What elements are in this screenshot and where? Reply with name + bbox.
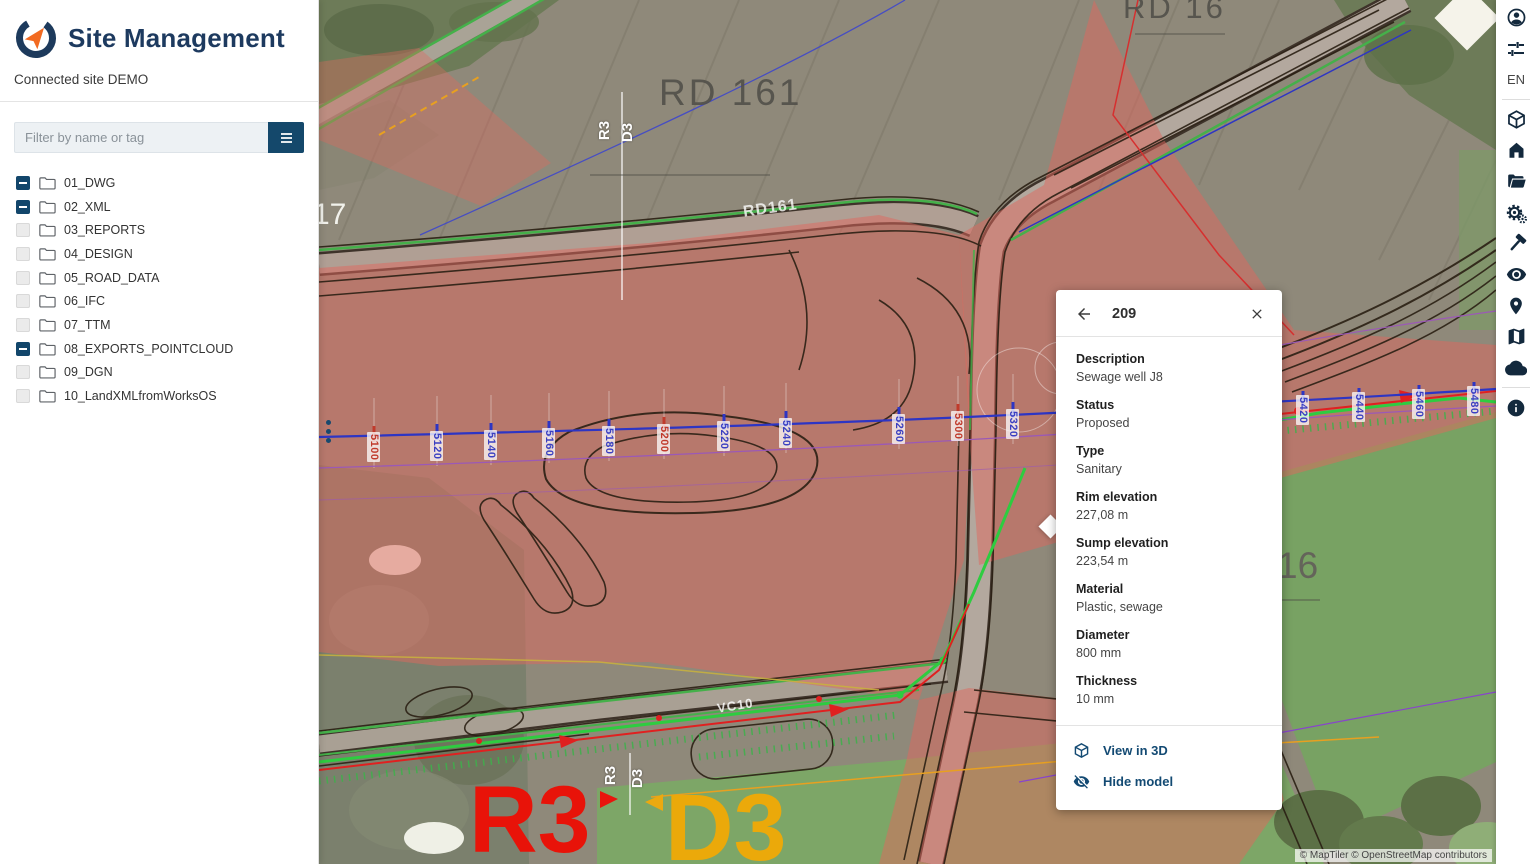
field-thickness: Thickness 10 mm	[1076, 673, 1262, 707]
visibility-button[interactable]	[1496, 259, 1536, 290]
panel-header: 209	[1056, 290, 1282, 336]
folder-icon	[39, 200, 56, 214]
tools-button[interactable]	[1496, 228, 1536, 259]
map-canvas[interactable]: RD 161 RD 16 RD161 VC10 17 16 R3 D3 R3 D…	[319, 0, 1496, 864]
eye-off-icon	[1073, 773, 1090, 790]
user-icon	[1506, 7, 1527, 28]
tree-item-04-design[interactable]: 04_DESIGN	[0, 242, 318, 266]
sidebar-resize-handle[interactable]	[326, 420, 336, 448]
hide-model-button[interactable]: Hide model	[1073, 766, 1266, 797]
app-logo-compass-icon	[14, 16, 58, 60]
home-icon	[1506, 140, 1527, 161]
checkbox-unchecked[interactable]	[16, 294, 30, 308]
tree-item-label: 01_DWG	[64, 176, 115, 190]
alignment-marker-d3-bottom: D3	[629, 769, 646, 788]
settings-button[interactable]	[1496, 197, 1536, 228]
sidebar-header: Site Management Connected site DEMO	[0, 0, 318, 102]
road-label-rd161: RD 161	[659, 72, 802, 114]
folder-icon	[39, 342, 56, 356]
route-label-17: 17	[319, 198, 346, 232]
cloud-sync-button[interactable]	[1496, 352, 1536, 383]
tree-item-09-dgn[interactable]: 09_DGN	[0, 361, 318, 385]
home-button[interactable]	[1496, 135, 1536, 166]
eye-icon	[1506, 264, 1527, 285]
folder-icon	[39, 318, 56, 332]
filter-menu-button[interactable]	[268, 122, 304, 153]
back-button[interactable]	[1073, 303, 1095, 325]
language-label: EN	[1507, 72, 1525, 87]
checkbox-unchecked[interactable]	[16, 318, 30, 332]
field-material: Material Plastic, sewage	[1076, 581, 1262, 615]
checkbox-indeterminate[interactable]	[16, 200, 30, 214]
alignment-marker-d3-top: D3	[619, 123, 636, 142]
station-label: 5160	[542, 428, 555, 458]
view-in-3d-button[interactable]: View in 3D	[1073, 735, 1266, 766]
folder-icon	[39, 247, 56, 261]
field-type: Type Sanitary	[1076, 443, 1262, 477]
sliders-icon	[1506, 39, 1526, 59]
folder-open-icon	[1506, 171, 1527, 192]
checkbox-unchecked[interactable]	[16, 247, 30, 261]
station-label: 5180	[602, 426, 615, 456]
location-button[interactable]	[1496, 290, 1536, 321]
zone-label-r3: R3	[469, 778, 590, 864]
back-arrow-icon	[1075, 305, 1093, 323]
checkbox-unchecked[interactable]	[16, 365, 30, 379]
folder-icon	[39, 389, 56, 403]
checkbox-unchecked[interactable]	[16, 389, 30, 403]
location-pin-icon	[1506, 296, 1526, 316]
tree-item-10-landxml[interactable]: 10_LandXMLfromWorksOS	[0, 384, 318, 408]
gears-icon	[1505, 202, 1527, 224]
alignment-marker-r3-top: R3	[596, 121, 613, 140]
tree-item-06-ifc[interactable]: 06_IFC	[0, 289, 318, 313]
tree-item-03-reports[interactable]: 03_REPORTS	[0, 218, 318, 242]
zone-label-d3: D3	[665, 786, 786, 864]
toolbar-divider	[1502, 99, 1530, 100]
tree-item-label: 07_TTM	[64, 318, 111, 332]
checkbox-indeterminate[interactable]	[16, 342, 30, 356]
folder-icon	[39, 271, 56, 285]
checkbox-unchecked[interactable]	[16, 223, 30, 237]
tree-item-08-exports-pointcloud[interactable]: 08_EXPORTS_POINTCLOUD	[0, 337, 318, 361]
info-icon	[1506, 398, 1526, 418]
tree-item-label: 10_LandXMLfromWorksOS	[64, 389, 217, 403]
close-button[interactable]	[1247, 304, 1267, 324]
tree-item-label: 04_DESIGN	[64, 247, 133, 261]
road-label-rd16: RD 16	[1123, 0, 1226, 26]
folder-icon	[39, 176, 56, 190]
tree-item-02-xml[interactable]: 02_XML	[0, 195, 318, 219]
station-label: 5480	[1467, 386, 1480, 416]
hammer-icon	[1506, 233, 1527, 254]
map-attribution: © MapTiler © OpenStreetMap contributors	[1295, 849, 1492, 862]
language-button[interactable]: EN	[1496, 64, 1536, 95]
app-title: Site Management	[68, 23, 285, 54]
view-3d-button[interactable]	[1496, 104, 1536, 135]
station-label: 5120	[430, 431, 443, 461]
station-label: 5220	[717, 421, 730, 451]
feature-info-panel: 209 Description Sewage well J8 Status Pr…	[1056, 290, 1282, 810]
station-label: 5320	[1006, 409, 1019, 439]
user-account-button[interactable]	[1496, 2, 1536, 33]
tree-item-07-ttm[interactable]: 07_TTM	[0, 313, 318, 337]
right-toolbar: EN	[1496, 0, 1536, 864]
filter-bar	[0, 102, 318, 157]
close-icon	[1249, 306, 1265, 322]
station-label: 5420	[1296, 395, 1309, 425]
field-rim-elevation: Rim elevation 227,08 m	[1076, 489, 1262, 523]
field-status: Status Proposed	[1076, 397, 1262, 431]
folder-icon	[39, 223, 56, 237]
alignment-marker-r3-bottom: R3	[602, 766, 619, 785]
field-description: Description Sewage well J8	[1076, 351, 1262, 385]
panel-actions: View in 3D Hide model	[1056, 726, 1282, 810]
tree-item-label: 06_IFC	[64, 294, 105, 308]
station-label: 5240	[779, 418, 792, 448]
tree-item-label: 09_DGN	[64, 365, 113, 379]
station-label: 5100	[367, 432, 380, 462]
station-label: 5260	[892, 414, 905, 444]
station-label: 5140	[484, 430, 497, 460]
toolbar-divider	[1502, 387, 1530, 388]
tree-item-label: 05_ROAD_DATA	[64, 271, 159, 285]
tree-item-05-road-data[interactable]: 05_ROAD_DATA	[0, 266, 318, 290]
station-label: 5440	[1352, 392, 1365, 422]
settings-sliders-button[interactable]	[1496, 33, 1536, 64]
panel-fields: Description Sewage well J8 Status Propos…	[1056, 337, 1282, 725]
filter-input[interactable]	[14, 122, 268, 153]
cube-3d-icon	[1506, 109, 1527, 130]
tree-item-label: 02_XML	[64, 200, 111, 214]
station-label: 5200	[657, 424, 670, 454]
projects-button[interactable]	[1496, 166, 1536, 197]
info-button[interactable]	[1496, 392, 1536, 423]
connected-site-label: Connected site DEMO	[14, 72, 304, 87]
checkbox-indeterminate[interactable]	[16, 176, 30, 190]
basemap-button[interactable]	[1496, 321, 1536, 352]
tree-item-label: 03_REPORTS	[64, 223, 145, 237]
cube-3d-icon	[1073, 742, 1090, 759]
panel-title: 209	[1112, 306, 1136, 322]
hamburger-icon	[279, 131, 294, 145]
map-icon	[1506, 326, 1527, 347]
station-label: 5460	[1412, 389, 1425, 419]
cloud-icon	[1505, 357, 1527, 379]
file-tree: 01_DWG 02_XML 03_REPORTS 04_DESIGN 05_RO…	[0, 171, 318, 408]
field-diameter: Diameter 800 mm	[1076, 627, 1262, 661]
tree-item-label: 08_EXPORTS_POINTCLOUD	[64, 342, 233, 356]
field-sump-elevation: Sump elevation 223,54 m	[1076, 535, 1262, 569]
folder-icon	[39, 365, 56, 379]
tree-item-01-dwg[interactable]: 01_DWG	[0, 171, 318, 195]
checkbox-unchecked[interactable]	[16, 271, 30, 285]
folder-icon	[39, 294, 56, 308]
sidebar: Site Management Connected site DEMO 01_D…	[0, 0, 319, 864]
route-label-16: 16	[1277, 545, 1318, 587]
station-label: 5300	[951, 411, 964, 441]
